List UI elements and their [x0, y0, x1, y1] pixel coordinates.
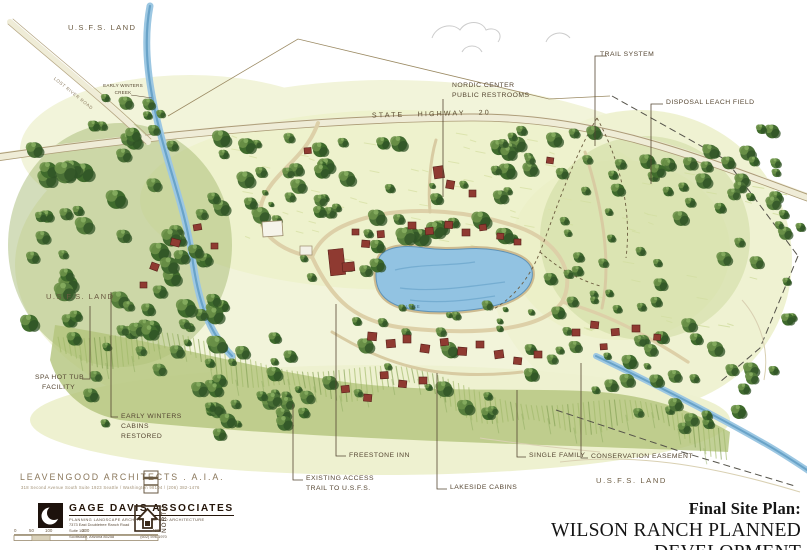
label-single-family: SINGLE FAMILY [529, 451, 585, 461]
label-disposal-leach-field: DISPOSAL LEACH FIELD [666, 98, 754, 108]
label-lakeside-cabins: LAKESIDE CABINS [450, 483, 517, 493]
plan-subtitle: Final Site Plan: [440, 499, 801, 519]
title-block: Final Site Plan: WILSON RANCH PLANNED DE… [440, 499, 801, 550]
site-plan-page: U.S.F.S. LAND EARLY WINTERS CREEK LOST R… [0, 0, 807, 550]
label-spa-hot-tub: SPA HOT TUB FACILITY [35, 373, 84, 393]
label-usfs-land-bottom: U.S.F.S. LAND [596, 475, 667, 486]
label-lake: LAKE [406, 304, 421, 310]
lake [376, 247, 532, 312]
scale-tick-0: 0 [14, 528, 17, 533]
label-early-winters-creek: EARLY WINTERS CREEK [99, 83, 147, 97]
label-early-winters-cabins: EARLY WINTERS CABINS RESTORED [121, 412, 182, 443]
label-trail-system: TRAIL SYSTEM [600, 50, 654, 60]
label-conservation-easement: CONSERVATION EASEMENT [591, 452, 693, 462]
leavengood-logo-icon [142, 469, 162, 495]
scale-tick-100: 100 [45, 528, 53, 533]
label-freestone-inn: FREESTONE INN [349, 451, 410, 461]
leavengood-architects-address: 318 Second Avenue South Suite 1923 Seatt… [21, 485, 200, 490]
leavengood-architects-name: LEAVENGOOD ARCHITECTS . A.I.A. [20, 472, 224, 482]
scale-tick-50: 50 [29, 528, 34, 533]
scale-bar: 0 50 100 200 400 [12, 527, 177, 545]
label-existing-access-trail: EXISTING ACCESS TRAIL TO U.S.F.S. [306, 474, 374, 494]
scale-tick-400: 400 [152, 528, 160, 533]
gage-davis-logo-icon [38, 503, 63, 528]
label-nordic-center: NORDIC CENTER PUBLIC RESTROOMS [452, 81, 529, 101]
scale-tick-200: 200 [82, 528, 90, 533]
label-usfs-land-left: U.S.F.S. LAND [46, 291, 114, 302]
plan-title: WILSON RANCH PLANNED DEVELOPMENT [440, 520, 801, 550]
label-usfs-land-top: U.S.F.S. LAND [68, 22, 136, 33]
